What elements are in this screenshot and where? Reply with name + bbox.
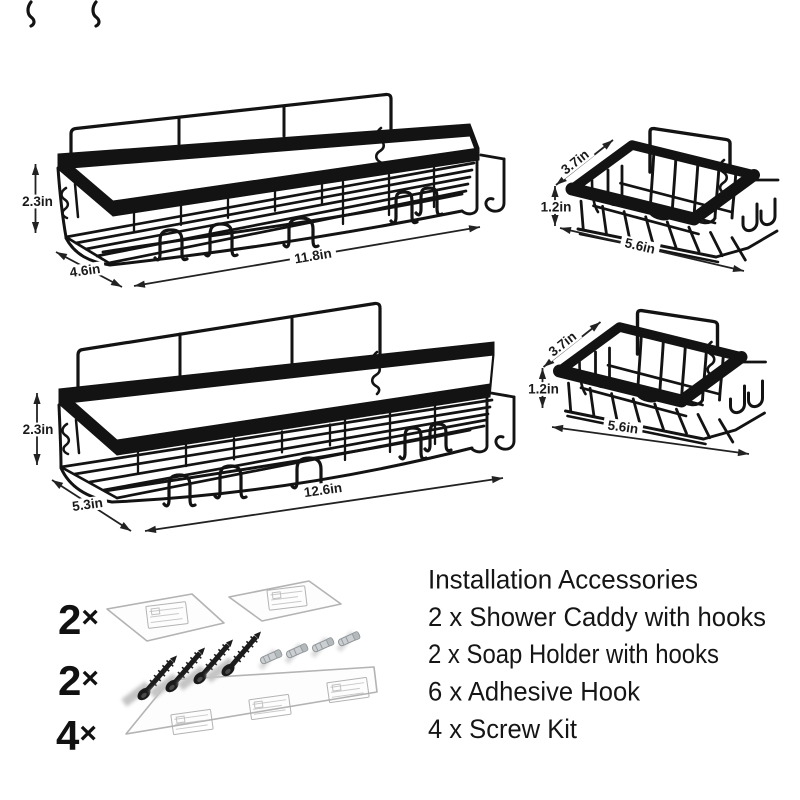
svg-text:2.3in: 2.3in [22,194,53,209]
svg-text:2.3in: 2.3in [23,422,54,437]
svg-text:2 x Soap Holder with hooks: 2 x Soap Holder with hooks [428,639,719,669]
svg-text:Installation Accessories: Installation Accessories [428,565,698,595]
svg-text:2 x Shower Caddy with hooks: 2 x Shower Caddy with hooks [428,602,766,632]
svg-text:1.2in: 1.2in [541,200,572,215]
svg-text:6 x Adhesive Hook: 6 x Adhesive Hook [428,677,640,707]
svg-text:4 x Screw Kit: 4 x Screw Kit [428,714,577,744]
svg-text:1.2in: 1.2in [528,382,559,397]
